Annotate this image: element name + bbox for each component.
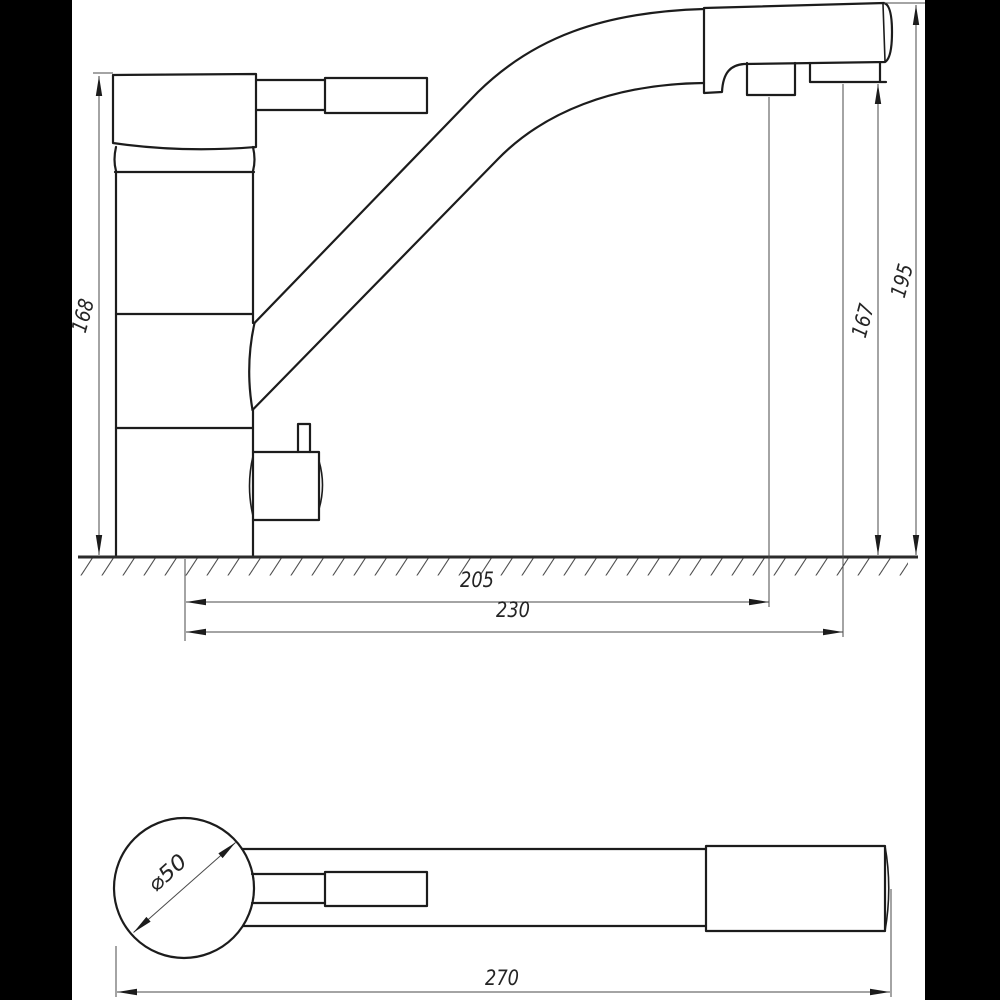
spout-head (704, 3, 892, 93)
outlet-nozzle-far (810, 63, 886, 82)
handle-stem-plan (252, 874, 325, 903)
handle-plan (252, 872, 427, 906)
valve-stem (298, 424, 310, 452)
handle-stem (256, 80, 325, 110)
mounting-surface (78, 557, 918, 576)
dim-label-outlet-height: 167 (847, 301, 879, 341)
dim-label-base-diameter: ⌀50 (143, 849, 192, 896)
dimension-base-diameter: ⌀50 (134, 843, 236, 933)
spout-head-plan (706, 846, 885, 931)
dimension-outlet-height: 167 (847, 84, 879, 555)
body-sides (116, 171, 253, 556)
dim-label-reach-far: 230 (496, 598, 530, 622)
spout-body-junction-arc (249, 323, 254, 410)
valve-body (253, 452, 319, 520)
faucet-technical-drawing: 168 195 167 205 230 (0, 0, 1000, 1000)
dimension-reach-far: 230 (186, 84, 843, 637)
letterbox-left (0, 0, 72, 1000)
dimension-line (134, 843, 236, 933)
handle (113, 74, 427, 149)
faucet-body (115, 147, 255, 556)
handle-grip-plan (325, 872, 427, 906)
dim-label-overall-height: 195 (886, 261, 918, 300)
dim-label-reach-near: 205 (460, 568, 494, 592)
dimension-overall-length: 270 (116, 889, 891, 997)
handle-grip (325, 78, 427, 113)
spout-upper-edge (255, 9, 705, 323)
outlet-nozzle-near (747, 63, 795, 95)
spout (253, 3, 893, 410)
body-neck (115, 147, 255, 171)
body-section-lines (116, 314, 253, 428)
side-view: 168 195 167 205 230 (67, 3, 925, 641)
ground-hatching (80, 559, 908, 576)
handle-cap (113, 74, 256, 149)
filter-valve (250, 424, 323, 520)
plan-view: ⌀50 270 (114, 818, 891, 997)
dim-label-overall-length: 270 (485, 966, 519, 990)
spout-head-end-chord (883, 4, 885, 61)
letterbox-right (925, 0, 1000, 1000)
dimension-overall-height: 195 (884, 3, 925, 555)
spout-tube-plan (242, 849, 706, 926)
spout-lower-edge (253, 83, 705, 410)
dimension-body-height: 168 (67, 73, 113, 555)
drawing-page: 168 195 167 205 230 (0, 0, 1000, 1000)
spout-plan (242, 846, 889, 931)
